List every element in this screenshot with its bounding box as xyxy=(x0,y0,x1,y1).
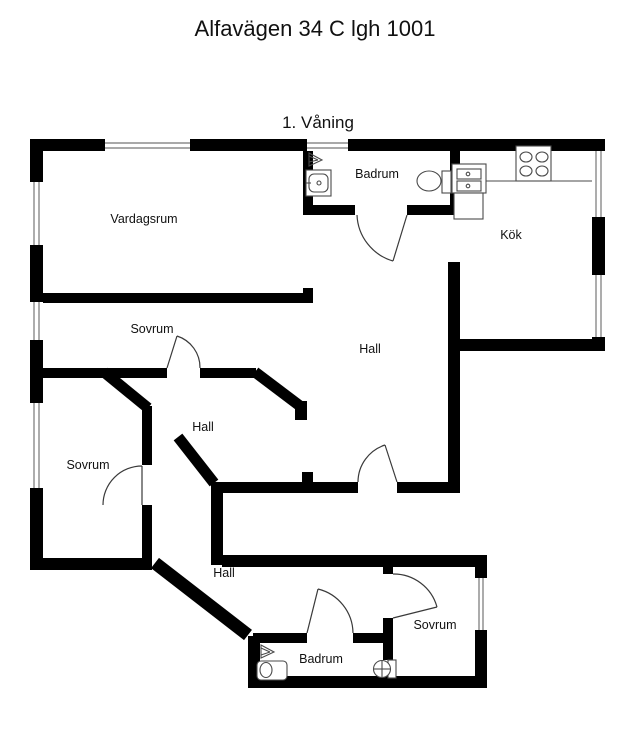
room-label-kok: Kök xyxy=(500,228,522,242)
page-title: Alfavägen 34 C lgh 1001 xyxy=(195,16,436,41)
door-arc-icon xyxy=(393,574,437,618)
window-icon xyxy=(105,139,190,151)
door-arc-icon xyxy=(307,589,353,633)
washbasin-icon xyxy=(257,661,287,680)
room-label-badrum-top: Badrum xyxy=(355,167,399,181)
wall-sovrum-south-left xyxy=(30,368,167,378)
door-arc-icon xyxy=(167,336,200,368)
wall-badrum1-south-right xyxy=(407,205,450,215)
window-icon xyxy=(30,302,43,340)
room-label-badrum-bottom: Badrum xyxy=(299,652,343,666)
room-label-hall-lower: Hall xyxy=(213,566,235,580)
window-icon xyxy=(592,275,605,337)
window-icon xyxy=(592,151,605,217)
wall-sovrum2-west-lower xyxy=(383,618,393,660)
floorplan-page: Alfavägen 34 C lgh 1001 1. Våning xyxy=(0,0,629,754)
wall-hall-west-stub xyxy=(302,472,313,483)
room-label-hall-main: Hall xyxy=(359,342,381,356)
washbasin-icon xyxy=(306,170,331,196)
window-icon xyxy=(307,139,348,151)
fixtures xyxy=(257,146,592,680)
wall-cap xyxy=(303,288,313,303)
window-icon xyxy=(30,182,43,245)
room-label-hall-mid: Hall xyxy=(192,420,214,434)
wall-corridor-west-lower xyxy=(142,505,152,560)
wall-diagonal-2 xyxy=(255,372,300,406)
wall-sovrum2-west-upper xyxy=(383,567,393,574)
room-label-vardagsrum: Vardagsrum xyxy=(110,212,177,226)
toilet-icon xyxy=(417,171,451,193)
wall-badrum2-top-right xyxy=(353,633,385,643)
room-label-sovrum-bottom: Sovrum xyxy=(413,618,456,632)
wall-lower-block-top xyxy=(222,555,487,567)
window-icon xyxy=(475,578,487,630)
wall-kitchen-bottom xyxy=(450,339,605,351)
toilet-icon xyxy=(374,660,397,678)
wall-vardagsrum-sovrum xyxy=(30,293,313,303)
wall-lower-block-east-upper xyxy=(475,555,487,578)
wall-sovrum-left-bottom xyxy=(30,558,152,570)
wall-corridor-west-upper xyxy=(142,406,152,465)
wall-corridor-east xyxy=(211,482,223,565)
shower-icon xyxy=(261,645,274,658)
door-arc-icon xyxy=(358,445,397,482)
wall-badrum2-top-left xyxy=(253,633,307,643)
room-label-sovrum-top: Sovrum xyxy=(130,322,173,336)
wall-sovrum-south-right xyxy=(200,368,256,378)
kitchen-sink-cabinet-icon xyxy=(452,164,486,219)
floorplan-drawing: Alfavägen 34 C lgh 1001 1. Våning xyxy=(0,0,629,754)
floor-label: 1. Våning xyxy=(282,113,354,132)
room-label-sovrum-left: Sovrum xyxy=(66,458,109,472)
window-icon xyxy=(30,403,43,488)
wall-hall-east xyxy=(448,262,460,493)
wall-badrum1-south-left xyxy=(303,205,355,215)
stove-icon xyxy=(516,146,551,181)
wall-hall-south-left xyxy=(213,482,358,493)
wall-diagonal-3 xyxy=(178,437,214,483)
door-arc-icon xyxy=(357,215,407,261)
wall-hall-south-right xyxy=(397,482,458,493)
